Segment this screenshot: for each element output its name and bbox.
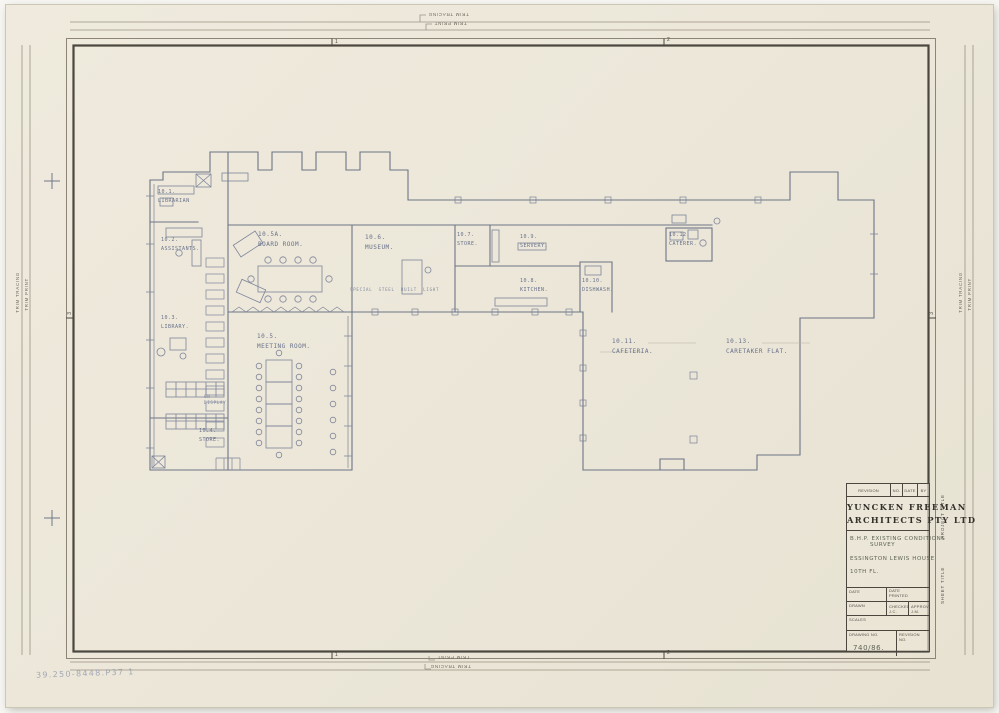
room-name: STORE. — [199, 436, 220, 445]
drawn-label: DRAWN — [849, 603, 884, 608]
drawing-no-value: 740/86. — [853, 644, 884, 652]
firm-name-line2: ARCHITECTS PTY LTD — [847, 514, 929, 527]
room-number: 10.5. — [257, 332, 310, 342]
date-row: DATE 23.11.67 DATE PRINTED — [847, 588, 929, 602]
room-label-10-9: 10.9. SERVERY. — [520, 233, 548, 250]
drawn-field: DRAWN MW — [847, 602, 887, 615]
room-number: 10.13. — [726, 337, 788, 347]
fold-mark-2-top: 2 — [667, 37, 670, 43]
room-label-10-2: 10.2. ASSISTANTS. — [161, 236, 200, 253]
project-title-line2: SURVEY — [870, 542, 926, 548]
room-number: 10.3. — [161, 314, 189, 323]
room-label-10-4: 10.4. STORE. — [199, 427, 220, 444]
trim-tracing-label-right: TRIM TRACING — [958, 272, 963, 313]
revision-header-row: REVISION NO. DATE BY — [847, 484, 929, 497]
fold-mark-1-top: 1 — [335, 39, 338, 45]
room-number: 10.4. — [199, 427, 220, 436]
date-field: DATE 23.11.67 — [847, 588, 887, 601]
room-number: 10.10. — [582, 277, 614, 286]
room-name: STORE. — [457, 240, 478, 249]
project-title-side-label: PROJECT TITLE — [940, 489, 945, 545]
drawing-no-label: DRAWING NO. — [849, 632, 894, 637]
checked-label: CHECKED J.C. — [889, 604, 909, 614]
room-name: LIBRARIAN — [158, 197, 190, 206]
room-label-10-7: 10.7. STORE. — [457, 231, 478, 248]
revision-no-label: REVISION NO. — [899, 632, 927, 642]
drawing-no-field: DRAWING NO. 740/86. — [847, 631, 897, 656]
scanned-architectural-drawing: { "document": { "firm_line1": "YUNCKEN F… — [0, 0, 999, 713]
room-number: 10.11. — [612, 337, 653, 347]
trim-tracing-label-top: TRIM TRACING — [428, 12, 469, 17]
room-label-10-12: 10.12. CATERER. — [669, 231, 697, 248]
room-name: DISHWASH. — [582, 286, 614, 295]
room-label-10-6: 10.6. MUSEUM. — [365, 233, 394, 252]
drawn-row: DRAWN MW CHECKED J.C. APPROVED J.M. — [847, 602, 929, 616]
room-label-10-13: 10.13. CARETAKER FLAT. — [726, 337, 788, 356]
room-label-10-5: 10.5. MEETING ROOM. — [257, 332, 310, 351]
room-number: 10.5A. — [258, 230, 303, 240]
sheet-title-side-label: SHEET TITLE — [940, 557, 945, 613]
approved-label: APPROVED J.M. — [911, 604, 929, 614]
scales-row: SCALES 1/8" = 1'-0" — [847, 616, 929, 631]
drawing-no-row: DRAWING NO. 740/86. REVISION NO. — [847, 631, 929, 656]
trim-print-label-top: TRIM PRINT — [434, 21, 467, 26]
revision-no-field: REVISION NO. — [897, 631, 929, 656]
scales-field: SCALES 1/8" = 1'-0" — [847, 616, 929, 630]
room-name: CAFETERIA. — [612, 347, 653, 357]
room-number: 10.12. — [669, 231, 697, 240]
room-name: CARETAKER FLAT. — [726, 347, 788, 357]
on-display-note: ON DISPLAY — [204, 394, 221, 407]
fold-mark-3-right: 3 — [929, 312, 935, 315]
trim-tracing-label-bottom: TRIM TRACING — [430, 664, 471, 669]
room-name: KITCHEN. — [520, 286, 548, 295]
fold-mark-1-bottom: 1 — [335, 652, 338, 658]
fold-mark-3-left: 3 — [67, 312, 73, 315]
room-number: 10.6. — [365, 233, 394, 243]
by-header: BY — [918, 484, 929, 496]
firm-name: YUNCKEN FREEMAN ARCHITECTS PTY LTD — [847, 497, 929, 531]
room-label-10-5a: 10.5A. BOARD ROOM. — [258, 230, 303, 249]
trim-print-label-right: TRIM PRINT — [967, 278, 972, 311]
sheet-title-line2: 10TH FL. — [850, 569, 926, 575]
date-printed-label: DATE PRINTED — [889, 589, 907, 599]
scales-label: SCALES — [849, 617, 927, 622]
fold-mark-2-bottom: 2 — [667, 650, 670, 656]
room-label-10-1: 10.1. LIBRARIAN — [158, 188, 190, 205]
corridor-note: SPECIAL STEEL BUILT LIGHT — [350, 287, 439, 292]
room-name: MUSEUM. — [365, 243, 394, 253]
room-number: 10.8. — [520, 277, 548, 286]
room-name: SERVERY. — [520, 242, 548, 251]
room-label-10-11: 10.11. CAFETERIA. — [612, 337, 653, 356]
room-label-10-10: 10.10. DISHWASH. — [582, 277, 614, 294]
approved-field: APPROVED J.M. — [909, 602, 929, 615]
title-block: REVISION NO. DATE BY YUNCKEN FREEMAN ARC… — [846, 483, 930, 652]
trim-print-label-bottom: TRIM PRINT — [437, 655, 470, 660]
no-header: NO. — [891, 484, 903, 496]
room-label-10-8: 10.8. KITCHEN. — [520, 277, 548, 294]
room-name: CATERER. — [669, 240, 697, 249]
room-number: 10.2. — [161, 236, 200, 245]
date-header: DATE — [903, 484, 918, 496]
firm-name-line1: YUNCKEN FREEMAN — [847, 501, 929, 514]
room-name: LIBRARY. — [161, 323, 189, 332]
sheet-title-line1: ESSINGTON LEWIS HOUSE — [850, 556, 926, 562]
room-label-10-3: 10.3. LIBRARY. — [161, 314, 189, 331]
room-name: MEETING ROOM. — [257, 342, 310, 352]
date-printed-field: DATE PRINTED — [887, 588, 929, 601]
room-name: BOARD ROOM. — [258, 240, 303, 250]
checked-field: CHECKED J.C. — [887, 602, 909, 615]
trim-print-label-left: TRIM PRINT — [24, 278, 29, 311]
project-and-sheet-title: B.H.P. EXISTING CONDITIONS SURVEY ESSING… — [847, 531, 929, 588]
room-number: 10.9. — [520, 233, 548, 242]
room-number: 10.1. — [158, 188, 190, 197]
room-name: ASSISTANTS. — [161, 245, 200, 254]
date-label: DATE — [849, 589, 884, 594]
trim-tracing-label-left: TRIM TRACING — [15, 272, 20, 313]
revision-header: REVISION — [847, 484, 891, 496]
room-number: 10.7. — [457, 231, 478, 240]
